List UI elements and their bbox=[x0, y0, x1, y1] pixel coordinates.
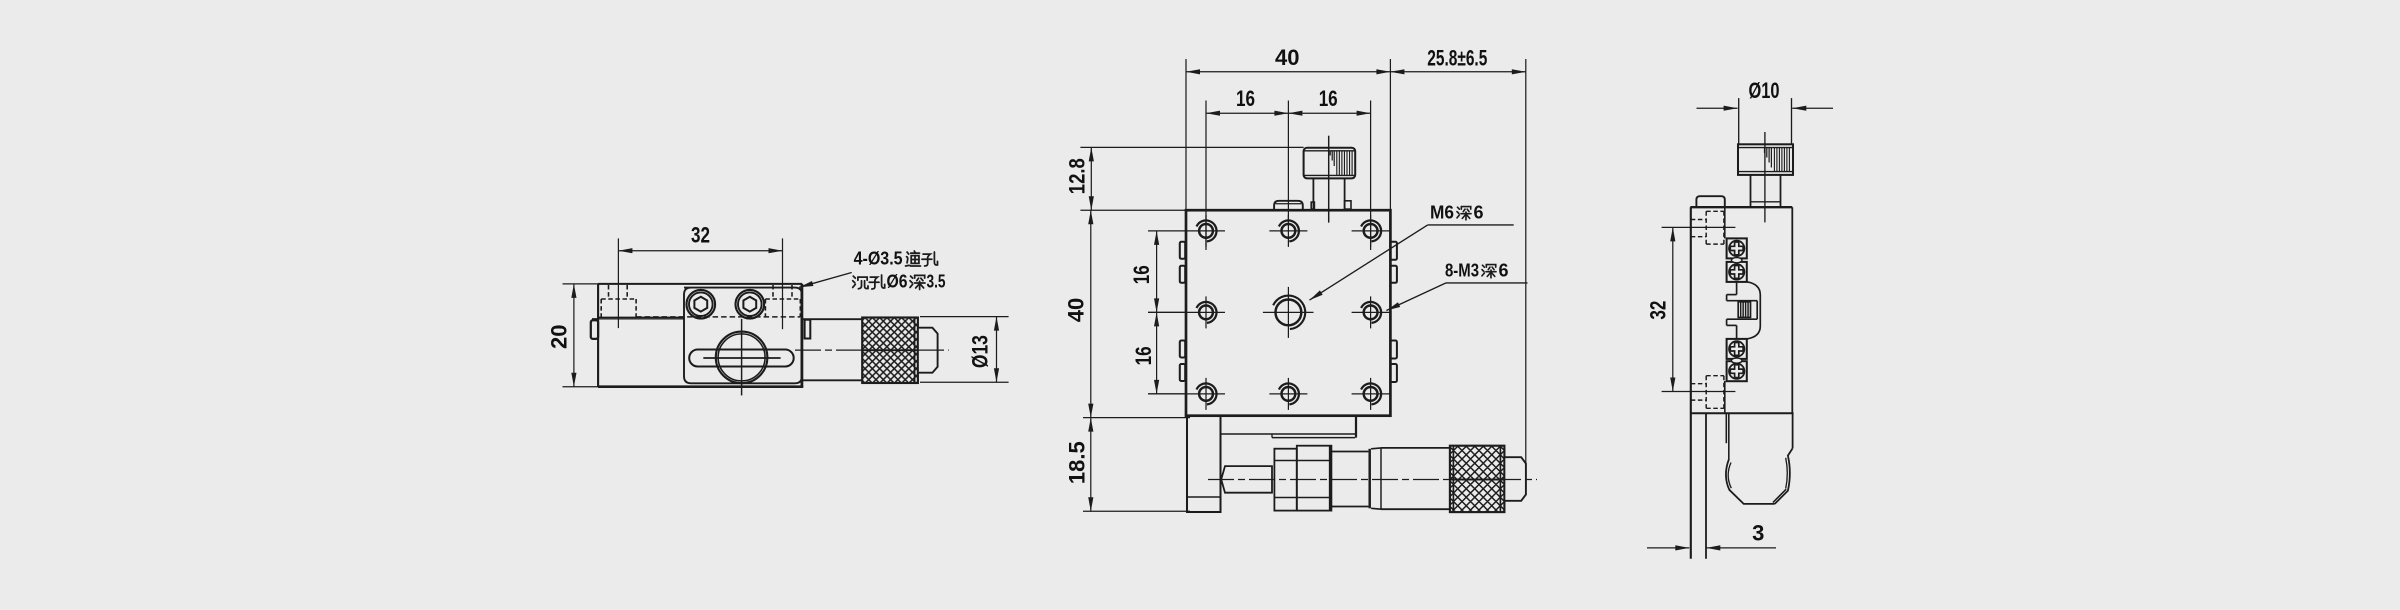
svg-text:Ø6: Ø6 bbox=[887, 272, 908, 292]
svg-text:Ø13: Ø13 bbox=[968, 335, 993, 368]
svg-text:25.8±6.5: 25.8±6.5 bbox=[1427, 46, 1487, 71]
svg-text:18.5: 18.5 bbox=[1065, 441, 1090, 484]
svg-text:3.5: 3.5 bbox=[927, 272, 946, 292]
svg-text:Ø10: Ø10 bbox=[1749, 78, 1780, 103]
svg-text:16: 16 bbox=[1131, 346, 1156, 365]
svg-text:6: 6 bbox=[1499, 261, 1509, 281]
svg-text:40: 40 bbox=[1063, 298, 1088, 322]
svg-text:32: 32 bbox=[1646, 301, 1671, 320]
svg-text:16: 16 bbox=[1319, 86, 1338, 111]
svg-text:32: 32 bbox=[691, 223, 710, 248]
svg-text:6: 6 bbox=[1474, 203, 1484, 223]
svg-text:20: 20 bbox=[547, 325, 572, 349]
svg-text:4-Ø3.5: 4-Ø3.5 bbox=[854, 249, 903, 269]
svg-text:16: 16 bbox=[1236, 86, 1255, 111]
svg-text:16: 16 bbox=[1129, 265, 1154, 284]
svg-text:40: 40 bbox=[1275, 45, 1299, 70]
svg-text:8-M3: 8-M3 bbox=[1445, 261, 1479, 281]
svg-text:M6: M6 bbox=[1430, 203, 1454, 223]
svg-text:3: 3 bbox=[1752, 520, 1764, 545]
svg-text:12.8: 12.8 bbox=[1065, 158, 1090, 194]
